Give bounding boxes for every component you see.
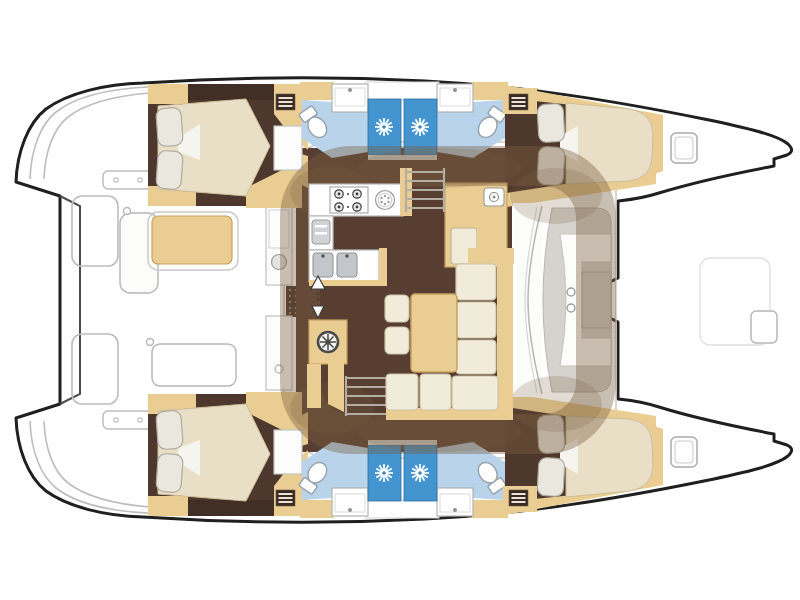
faucet: [453, 88, 457, 92]
sofa-back-trim: [497, 260, 513, 414]
stool: [385, 295, 409, 322]
fwd-companionway-ladder: [509, 94, 528, 110]
refrigerator: [309, 216, 333, 250]
cockpit-bench-cushion: [152, 216, 232, 264]
stove: [330, 187, 368, 213]
galley-trim: [307, 364, 321, 408]
pillow: [156, 150, 184, 190]
cup-holder: [567, 304, 575, 312]
deck-fitting: [147, 339, 154, 346]
deck-fitting: [124, 208, 131, 215]
faucet: [348, 88, 352, 92]
round-sink: [376, 191, 395, 210]
shower-cabinet-top: [366, 82, 439, 100]
aft-companionway-ladder: [276, 94, 295, 110]
cabin-trim: [148, 84, 188, 104]
floor-plan-canvas: [0, 0, 800, 600]
double-sink: [309, 250, 379, 282]
wardrobe: [274, 126, 302, 170]
stool: [385, 327, 409, 354]
saloon-table: [411, 294, 457, 372]
aft-cabin: [148, 84, 308, 208]
anchor-locker-hatch: [751, 311, 777, 343]
pillow: [537, 103, 565, 142]
bath-trim: [300, 82, 334, 100]
boat-floor-plan: [0, 0, 800, 600]
cockpit-table: [152, 344, 236, 386]
headboard-shelf: [186, 84, 276, 100]
instrument-dial-center: [493, 196, 496, 199]
foredeck-hatch: [671, 133, 697, 163]
sofa-back-trim: [477, 218, 503, 252]
cup-holder: [567, 288, 575, 296]
steps-trim: [328, 356, 344, 412]
pillow: [156, 107, 184, 147]
